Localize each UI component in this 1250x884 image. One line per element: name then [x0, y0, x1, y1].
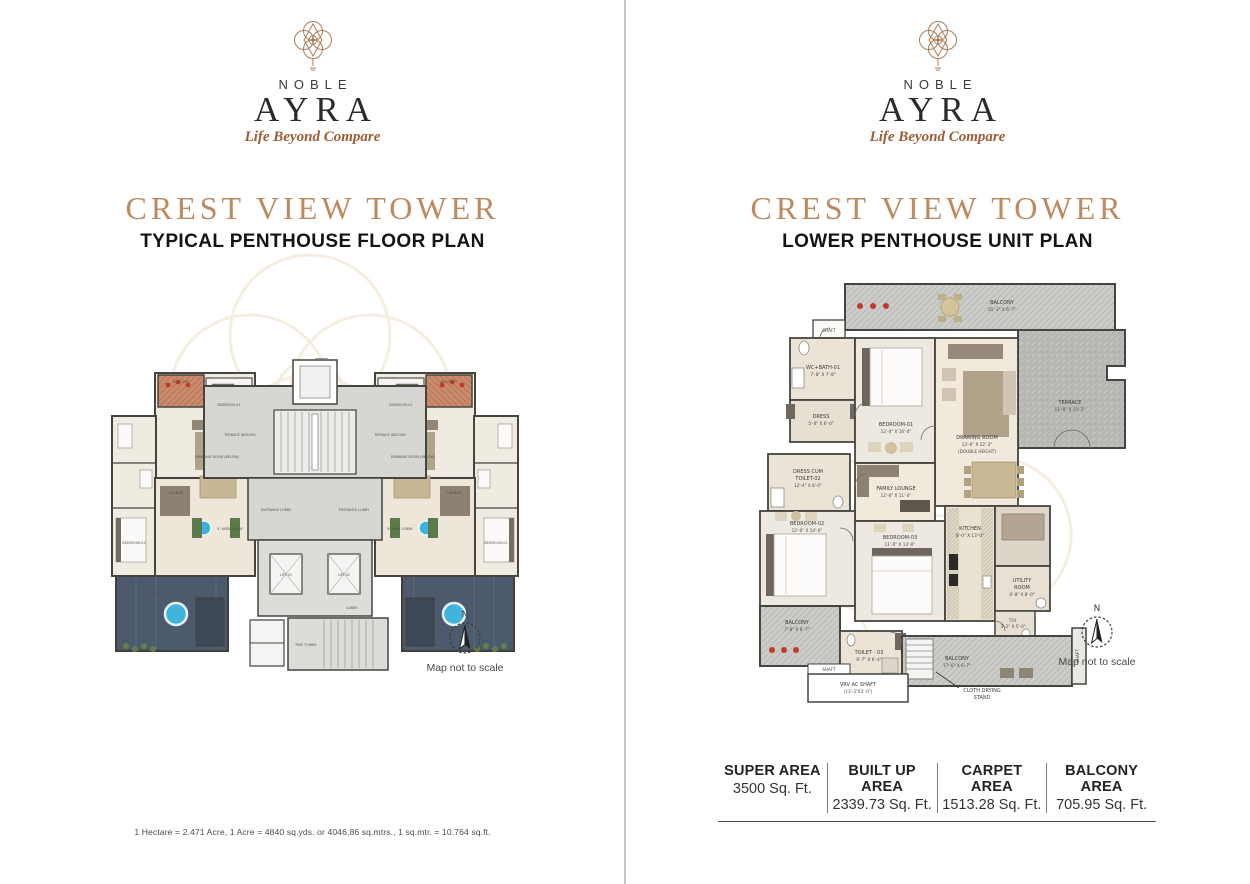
plan-label: TERRACE [465, 591, 482, 595]
balcony-left [760, 606, 840, 666]
room-dims: 6'-7" X 6'-4" [856, 657, 881, 662]
room-label: ROOM [1014, 585, 1030, 591]
compass-icon: N [1074, 602, 1120, 654]
page-subtitle: LOWER PENTHOUSE UNIT PLAN [625, 231, 1250, 253]
plan-label: BEDROOM-01 [389, 403, 412, 407]
room-label: BEDROOM-02 [790, 521, 824, 527]
plan-label: LIFT-01 [280, 573, 292, 577]
page-title: CREST VIEW TOWER [625, 190, 1250, 227]
plan-label: FIRE TOWER [295, 643, 317, 647]
room-label: FAMILY LOUNGE [876, 486, 915, 492]
room-dims: 8'-0" X 13'-0" [956, 533, 984, 538]
room-dims: 11'-0" X 13'-0" [885, 542, 916, 547]
room-label: UTILITY [1013, 578, 1033, 584]
brand-tagline: Life Beyond Compare [0, 129, 625, 146]
area-value: 1513.28 Sq. Ft. [942, 797, 1043, 813]
area-label: BALCONY AREA [1051, 763, 1152, 795]
page-subtitle: TYPICAL PENTHOUSE FLOOR PLAN [0, 231, 625, 253]
brand-block: NOBLE AYRA Life Beyond Compare [625, 16, 1250, 146]
room-dims: 7'-8" X 7'-8" [810, 372, 835, 377]
map-note: Map not to scale [410, 662, 520, 674]
compass-north-label: N [1094, 604, 1101, 614]
room-dims: 12'-6" X 11'-0" [881, 493, 912, 498]
compass-left: N Map not to scale [410, 608, 520, 674]
room-dims: 3'-2" X 5'-0" [1000, 624, 1025, 629]
page-typical-floor-plan: NOBLE AYRA Life Beyond Compare CREST VIE… [0, 0, 625, 884]
plan-label: ENTRANCE LOBBY [261, 508, 292, 512]
page-title: CREST VIEW TOWER [0, 190, 625, 227]
plan-label: TERRACE (BELOW) [373, 433, 406, 437]
room-dims: 13'-0" X 22'-2" [962, 442, 993, 447]
room-label: BALCONY [990, 300, 1015, 306]
plan-label: BALCONY [173, 380, 190, 384]
room-label: VRV AC SHAFT [840, 682, 877, 688]
area-label: SUPER AREA [722, 763, 823, 779]
room-label: SHAFT [822, 667, 836, 672]
plan-label: BEDROOM-02 [122, 541, 145, 545]
plan-label: 4' WIDE LOBBY [217, 527, 243, 531]
conversion-footnote: 1 Hectare = 2.471 Acre, 1 Acre = 4840 sq… [0, 827, 625, 837]
area-value: 2339.73 Sq. Ft. [832, 797, 933, 813]
brand-tagline: Life Beyond Compare [625, 129, 1250, 146]
plan-label: TERRACE [147, 591, 164, 595]
area-value: 3500 Sq. Ft. [722, 781, 823, 797]
room-note: (DOUBLE HEIGHT) [958, 449, 996, 454]
room-label: STAND [974, 695, 991, 701]
plan-label: LOBBY [347, 606, 359, 610]
plan-label: LIFT-02 [338, 573, 350, 577]
brand-flower-icon [288, 16, 338, 74]
brand-ayra: AYRA [0, 92, 625, 128]
plan-label: BEDROOM-02 [484, 541, 507, 545]
map-note: Map not to scale [1042, 656, 1152, 668]
room-label: BEDROOM-01 [879, 422, 913, 428]
area-cell-carpet: CARPET AREA 1513.28 Sq. Ft. [937, 763, 1047, 813]
room-dims: 5'-0" X 6'-0" [808, 421, 833, 426]
plan-label: LOUNGE [447, 491, 461, 495]
plan-label: LOUNGE [169, 491, 183, 495]
plan-label: BEDROOM-01 [217, 403, 240, 407]
compass-right: N Map not to scale [1042, 602, 1152, 668]
room-dims: (13'-3"X3'-0") [844, 689, 873, 694]
plan-label: TERRACE (BELOW) [223, 433, 256, 437]
room-label: DRAWING ROOM [956, 435, 998, 441]
plan-label: DRAWING ROOM (BELOW) [195, 455, 240, 459]
room-label: BALCONY [945, 656, 970, 662]
room-label: CLOTH DRYING [963, 688, 1001, 694]
room-label: BEDROOM-03 [883, 535, 917, 541]
room-dims: 12'-4" X 8'-0" [794, 483, 822, 488]
area-label: BUILT UP AREA [832, 763, 933, 795]
room-dims: 12'-0" X 14'-0" [792, 528, 823, 533]
room-label: WC+BATH-01 [806, 365, 840, 371]
room-label: SHAFT [822, 328, 836, 333]
room-dims: 6'-8" X 8'-0" [1009, 592, 1034, 597]
room-dims: 12'-0" X 16'-0" [881, 429, 912, 434]
brand-flower-icon [913, 16, 963, 74]
brand-ayra: AYRA [625, 92, 1250, 128]
room-dims: 11'-0" X 15'-2" [1055, 407, 1086, 412]
area-label: CARPET AREA [942, 763, 1043, 795]
room-label: DRESS CUM [793, 469, 823, 475]
plan-label: DRAWING ROOM (BELOW) [391, 455, 436, 459]
room-label: DRESS [813, 414, 830, 420]
plan-label: BALCONY [441, 380, 458, 384]
room-dims: 7'-8" X 6'-7" [784, 627, 809, 632]
plan-label: ENTRANCE LOBBY [339, 508, 370, 512]
room-label: TOI. [1008, 618, 1017, 623]
room-dims: 17'-6" X 6'-7" [943, 663, 971, 668]
vrv-ac-shaft [808, 674, 908, 702]
brand-block: NOBLE AYRA Life Beyond Compare [0, 16, 625, 146]
area-cell-super: SUPER AREA 3500 Sq. Ft. [718, 763, 827, 813]
room-label: KITCHEN [959, 526, 981, 532]
compass-icon: N [442, 608, 488, 660]
compass-north-label: N [462, 610, 469, 620]
plan-label: 4' WIDE LOBBY [387, 527, 413, 531]
area-cell-builtup: BUILT UP AREA 2339.73 Sq. Ft. [827, 763, 937, 813]
area-summary-table: SUPER AREA 3500 Sq. Ft. BUILT UP AREA 23… [718, 763, 1156, 822]
room-label: TOILET - 03 [854, 650, 884, 656]
room-dims: 31'-3" X 6'-7" [988, 307, 1016, 312]
room-label: TOILET-02 [794, 476, 820, 482]
area-value: 705.95 Sq. Ft. [1051, 797, 1152, 813]
room-label: BALCONY [785, 620, 810, 626]
area-cell-balcony: BALCONY AREA 705.95 Sq. Ft. [1046, 763, 1156, 813]
room-label: TERRACE [1058, 400, 1082, 406]
